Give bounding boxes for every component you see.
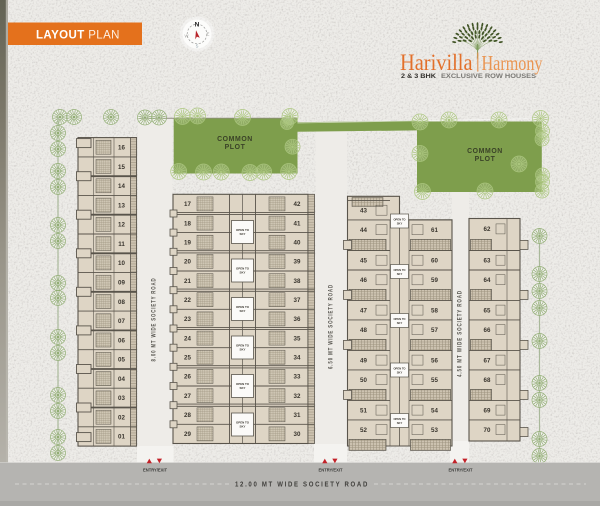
svg-text:33: 33 [294, 374, 301, 381]
svg-text:58: 58 [431, 307, 438, 314]
svg-text:05: 05 [118, 357, 125, 364]
svg-text:60: 60 [431, 258, 438, 265]
svg-text:70: 70 [484, 427, 491, 434]
svg-text:27: 27 [184, 393, 191, 400]
svg-text:50: 50 [360, 377, 367, 384]
svg-text:03: 03 [118, 395, 125, 402]
svg-text:07: 07 [118, 318, 125, 325]
svg-text:36: 36 [294, 316, 301, 323]
svg-text:PLOT: PLOT [225, 144, 246, 151]
svg-text:53: 53 [431, 427, 438, 434]
svg-text:11: 11 [118, 241, 125, 248]
svg-text:16: 16 [118, 145, 125, 152]
svg-text:39: 39 [294, 259, 301, 266]
svg-text:04: 04 [118, 376, 125, 383]
svg-text:65: 65 [484, 307, 491, 314]
svg-text:21: 21 [184, 278, 191, 285]
svg-text:26: 26 [184, 374, 191, 381]
svg-text:31: 31 [294, 412, 301, 419]
svg-text:44: 44 [360, 227, 367, 234]
svg-text:PLOT: PLOT [475, 156, 496, 163]
svg-text:S: S [196, 44, 199, 49]
svg-text:13: 13 [118, 202, 125, 209]
svg-text:ENTRY/EXIT: ENTRY/EXIT [143, 468, 167, 473]
svg-text:29: 29 [184, 431, 191, 438]
svg-text:OPEN TO: OPEN TO [393, 417, 405, 421]
svg-text:61: 61 [431, 227, 438, 234]
svg-text:42: 42 [294, 201, 301, 208]
svg-text:24: 24 [184, 335, 191, 342]
svg-text:18: 18 [184, 220, 191, 227]
svg-text:66: 66 [484, 327, 491, 334]
svg-text:25: 25 [184, 355, 191, 362]
svg-text:SKY: SKY [240, 232, 246, 236]
svg-text:Harmony: Harmony [482, 51, 543, 75]
svg-text:64: 64 [484, 277, 491, 284]
svg-text:SKY: SKY [397, 370, 403, 374]
svg-text:OPEN TO: OPEN TO [393, 268, 405, 272]
svg-text:01: 01 [118, 434, 125, 441]
svg-text:6.50 MT WIDE SOCIETY ROAD: 6.50 MT WIDE SOCIETY ROAD [329, 284, 335, 369]
svg-text:57: 57 [431, 327, 438, 334]
svg-text:SKY: SKY [397, 421, 403, 425]
svg-text:OPEN TO: OPEN TO [393, 218, 405, 222]
svg-text:32: 32 [294, 393, 301, 400]
svg-text:SKY: SKY [397, 272, 403, 276]
svg-text:ENTRY/EXIT: ENTRY/EXIT [449, 468, 473, 473]
svg-text:SKY: SKY [240, 425, 246, 429]
svg-text:SKY: SKY [397, 221, 403, 225]
svg-text:COMMON: COMMON [217, 136, 253, 143]
svg-text:69: 69 [484, 407, 491, 414]
svg-text:59: 59 [431, 277, 438, 284]
svg-text:62: 62 [484, 226, 491, 233]
svg-text:EXCLUSIVE ROW HOUSES: EXCLUSIVE ROW HOUSES [441, 73, 537, 80]
svg-text:SKY: SKY [240, 386, 246, 390]
svg-text:23: 23 [184, 316, 191, 323]
svg-text:OPEN TO: OPEN TO [393, 367, 405, 371]
svg-text:46: 46 [360, 277, 367, 284]
svg-text:34: 34 [294, 355, 301, 362]
svg-text:68: 68 [484, 377, 491, 384]
svg-text:09: 09 [118, 280, 125, 287]
svg-text:56: 56 [431, 357, 438, 364]
svg-text:10: 10 [118, 260, 125, 267]
svg-text:SKY: SKY [240, 348, 246, 352]
svg-text:45: 45 [360, 258, 367, 265]
svg-text:E: E [207, 32, 210, 37]
svg-text:08: 08 [118, 299, 125, 306]
svg-text:COMMON: COMMON [467, 148, 503, 155]
svg-text:51: 51 [360, 407, 367, 414]
svg-text:N: N [195, 22, 200, 29]
svg-text:19: 19 [184, 240, 191, 247]
svg-text:54: 54 [431, 407, 438, 414]
svg-text:40: 40 [294, 240, 301, 247]
svg-text:SKY: SKY [397, 321, 403, 325]
svg-text:17: 17 [184, 201, 191, 208]
svg-text:15: 15 [118, 164, 125, 171]
svg-text:37: 37 [294, 297, 301, 304]
svg-text:22: 22 [184, 297, 191, 304]
svg-text:38: 38 [294, 278, 301, 285]
svg-text:52: 52 [360, 427, 367, 434]
svg-text:12: 12 [118, 222, 125, 229]
svg-text:12.00 MT WIDE SOCIETY ROAD: 12.00 MT WIDE SOCIETY ROAD [235, 480, 369, 489]
svg-text:14: 14 [118, 183, 125, 190]
svg-text:4.50 MT WIDE SOCIETY ROAD: 4.50 MT WIDE SOCIETY ROAD [458, 290, 464, 377]
svg-text:48: 48 [360, 327, 367, 334]
svg-text:02: 02 [118, 415, 125, 422]
svg-text:OPEN TO: OPEN TO [393, 317, 405, 321]
svg-text:43: 43 [360, 208, 367, 215]
svg-text:47: 47 [360, 307, 367, 314]
svg-text:28: 28 [184, 412, 191, 419]
svg-text:SKY: SKY [240, 271, 246, 275]
svg-text:20: 20 [184, 259, 191, 266]
svg-text:30: 30 [294, 431, 301, 438]
svg-text:SKY: SKY [240, 309, 246, 313]
svg-text:35: 35 [294, 335, 301, 342]
svg-text:W: W [185, 34, 189, 39]
svg-text:41: 41 [294, 220, 301, 227]
svg-text:2 & 3 BHK: 2 & 3 BHK [401, 73, 436, 80]
svg-text:55: 55 [431, 377, 438, 384]
svg-text:06: 06 [118, 337, 125, 344]
svg-text:ENTRY/EXIT: ENTRY/EXIT [319, 468, 343, 473]
svg-text:63: 63 [484, 258, 491, 265]
svg-text:LAYOUT PLAN: LAYOUT PLAN [36, 30, 120, 42]
svg-text:67: 67 [484, 357, 491, 364]
svg-text:8.00 MT WIDE SOCIETY ROAD: 8.00 MT WIDE SOCIETY ROAD [152, 278, 158, 362]
svg-text:49: 49 [360, 357, 367, 364]
